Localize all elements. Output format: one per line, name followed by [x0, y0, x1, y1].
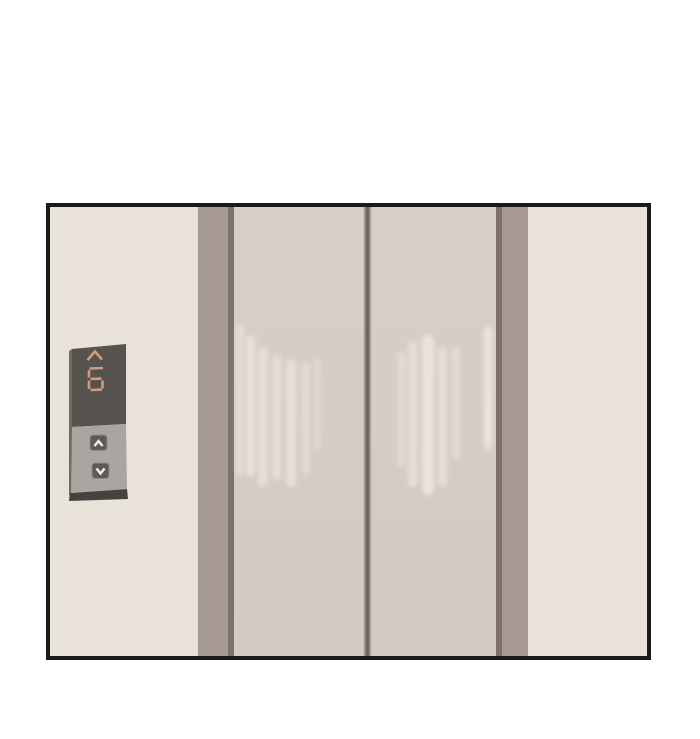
panel-frame — [46, 203, 651, 660]
call-up-button — [90, 435, 107, 451]
door-highlight-streak — [314, 357, 320, 452]
door-pillar-right-edge — [496, 207, 502, 656]
door-highlight-streak — [438, 347, 447, 487]
door-seam — [363, 207, 372, 656]
door-pillar-left — [198, 207, 228, 656]
door-highlight-streak — [246, 335, 255, 477]
door-highlight-streak — [484, 327, 492, 449]
door-highlight-streak — [286, 359, 296, 487]
call-down-button — [92, 463, 109, 479]
illustration-canvas: { "scene": { "subject": "elevator-lobby-… — [0, 0, 700, 739]
door-highlight-streak — [258, 347, 268, 487]
door-highlight-streak — [422, 335, 434, 495]
door-highlight-streak — [408, 342, 417, 487]
door-highlight-streak — [452, 347, 460, 459]
elevator-call-panel — [68, 340, 130, 504]
door-highlight-streak — [272, 355, 281, 480]
door-pillar-right — [502, 207, 528, 656]
door-highlight-streak — [302, 362, 310, 474]
call-button-section — [71, 424, 127, 493]
door-highlight-streak — [398, 352, 405, 467]
door-highlight-streak — [236, 325, 244, 475]
